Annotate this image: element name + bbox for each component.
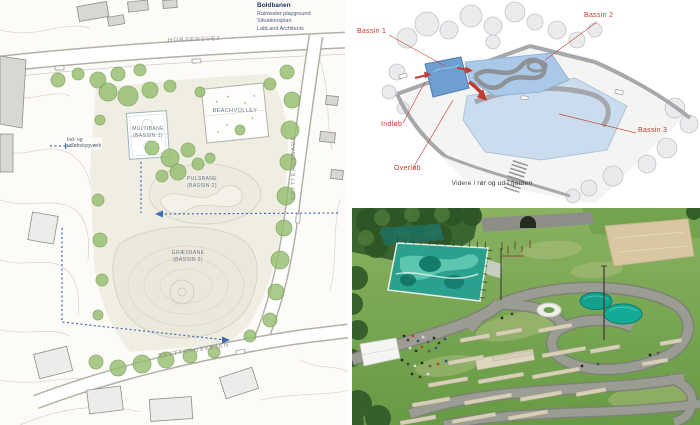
aerial-photo-panel <box>352 208 700 425</box>
multibane-court-photo <box>388 240 490 301</box>
area-label-multibane-line1: MULTIBANE <box>126 126 170 133</box>
site-plan-drawing <box>0 0 348 425</box>
project-subtitle: Rainwater playground <box>257 11 343 18</box>
label-bassin-2: Bassin 2 <box>584 12 613 20</box>
area-label-beachvolley: BEACHVOLLEY <box>204 108 266 115</box>
collage: HORSENSVEJ SKYTTEHUSGADE SKYTTEHUSVEJEN … <box>0 0 700 425</box>
label-outflow: Videre i rør og ud i fjorden <box>432 180 552 188</box>
label-bassin-3: Bassin 3 <box>638 127 667 135</box>
title-block: Boldbanen Rainwater playground Situation… <box>257 2 343 33</box>
label-bassin-1: Bassin 1 <box>357 28 386 36</box>
street-label-skyttehusgade: SKYTTEHUSGADE <box>291 136 298 200</box>
basin-diagram-drawing <box>345 0 700 204</box>
area-label-multibane-line2: (BASSIN 1) <box>126 133 170 140</box>
area-label-pulsbane-line2: (BASSIN 2) <box>178 183 226 190</box>
label-indloeb: Indløb <box>381 121 402 129</box>
architect-name: LabLand Architects <box>257 26 343 33</box>
inlet-note-line2: udløbsbygværk <box>67 143 101 149</box>
site-plan-panel: HORSENSVEJ SKYTTEHUSGADE SKYTTEHUSVEJEN … <box>0 0 348 425</box>
drawing-type: Situationsplan <box>257 18 343 25</box>
area-label-graesbane-line2: (BASSIN 3) <box>164 257 212 264</box>
area-label-graesbane: GRÆSBANE (BASSIN 3) <box>164 250 212 263</box>
aerial-photo <box>352 208 700 425</box>
area-label-multibane: MULTIBANE (BASSIN 1) <box>126 126 170 139</box>
area-label-pulsbane: PULSBANE (BASSIN 2) <box>178 176 226 189</box>
project-title: Boldbanen <box>257 2 343 11</box>
inlet-note: Ind- og udløbsbygværk <box>66 137 102 150</box>
graesbane-area <box>113 227 257 338</box>
basin-diagram-panel: Bassin 1 Bassin 2 Bassin 3 Indløb Overlø… <box>345 0 700 204</box>
label-overloeb: Overløb <box>394 165 421 173</box>
